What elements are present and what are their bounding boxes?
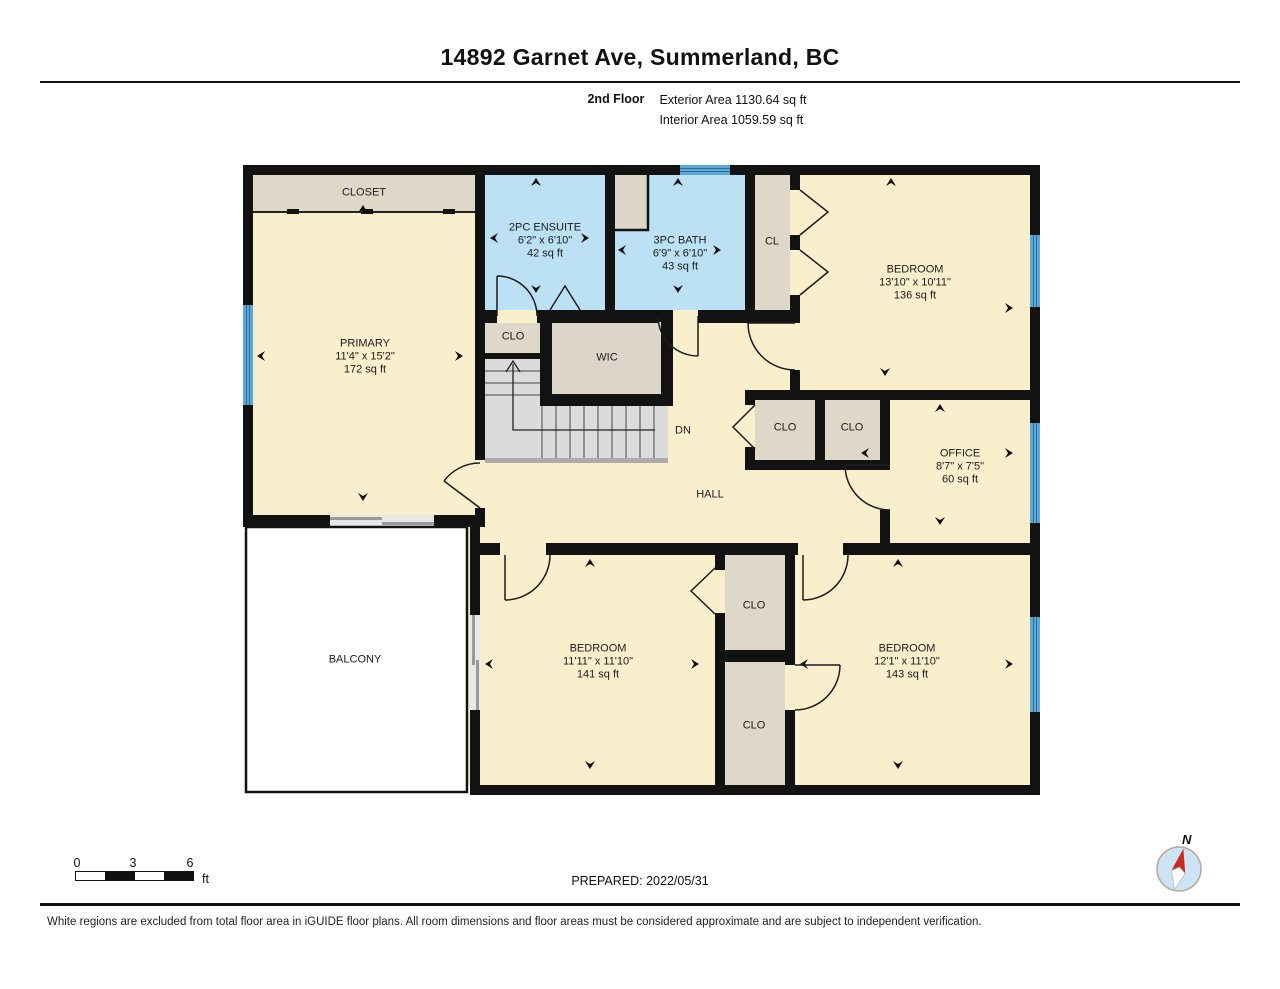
prepared-date: PREPARED: 2022/05/31 [0, 874, 1280, 888]
room-label-bath: 3PC BATH6'9" x 6'10"43 sq ft [653, 235, 707, 274]
room-label-clo-stairs: CLO [502, 331, 525, 344]
footer-divider [40, 903, 1240, 906]
room-label-closet: CLOSET [342, 187, 386, 200]
floor-summary: 2nd Floor Exterior Area 1130.64 sq ft In… [587, 90, 806, 130]
scale-tick-0: 0 [74, 856, 81, 870]
compass-north-label: N [1182, 832, 1191, 847]
compass-icon [1152, 834, 1210, 896]
floor-label: 2nd Floor [587, 90, 644, 130]
room-label-wic: WIC [596, 352, 617, 365]
room-label-balcony: BALCONY [329, 654, 382, 667]
scale-tick-3: 3 [130, 856, 137, 870]
room-label-office: OFFICE8'7" x 7'5"60 sq ft [936, 448, 984, 487]
room-label-clo-s-lower: CLO [743, 720, 766, 733]
room-label-bedroom-sw: BEDROOM11'11" x 11'10"141 sq ft [563, 643, 633, 682]
stairs-dn-label: DN [675, 425, 691, 438]
scale-tick-6: 6 [187, 856, 194, 870]
exterior-area: Exterior Area 1130.64 sq ft [659, 90, 806, 110]
header-divider [40, 81, 1240, 83]
room-label-clo-hall-right: CLO [841, 422, 864, 435]
room-label-hall: HALL [696, 489, 724, 502]
room-label-primary: PRIMARY11'4" x 15'2"172 sq ft [335, 338, 395, 377]
room-label-clo-s-upper: CLO [743, 600, 766, 613]
floor-plan-drawing [243, 165, 1040, 795]
compass: N [1152, 834, 1216, 904]
room-label-cl: CL [765, 236, 779, 249]
room-label-clo-hall-left: CLO [774, 422, 797, 435]
room-label-bedroom-se: BEDROOM12'1" x 11'10"143 sq ft [874, 643, 940, 682]
disclaimer-text: White regions are excluded from total fl… [47, 916, 1247, 928]
room-label-ensuite: 2PC ENSUITE6'2" x 6'10"42 sq ft [509, 222, 581, 261]
room-label-bedroom-ne: BEDROOM13'10" x 10'11"136 sq ft [879, 264, 951, 303]
floor-plan: CLOSET PRIMARY11'4" x 15'2"172 sq ft 2PC… [243, 165, 1040, 795]
interior-area: Interior Area 1059.59 sq ft [659, 110, 806, 130]
page-title: 14892 Garnet Ave, Summerland, BC [0, 44, 1280, 71]
